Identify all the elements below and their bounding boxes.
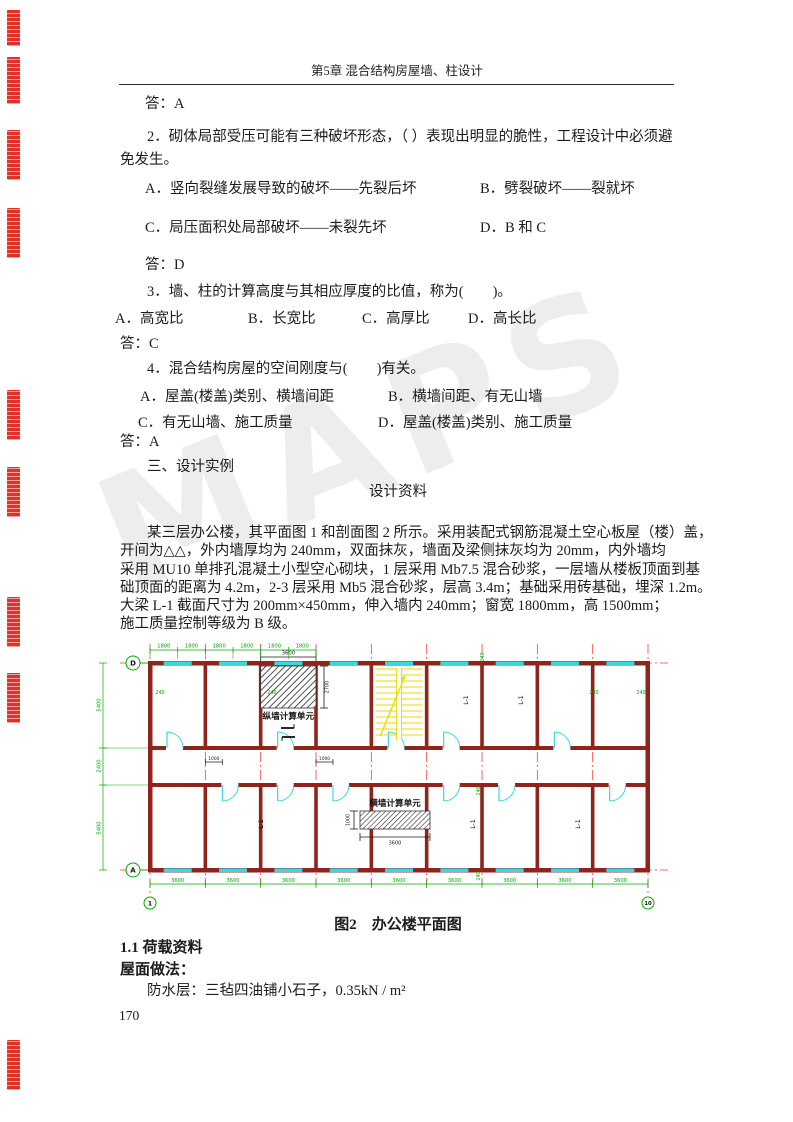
design-paragraph-l1: 某三层办公楼，其平面图 1 和剖面图 2 所示。采用装配式钢筋混凝土空心板屋（楼… [120,524,703,543]
bottom-dim-label: 3600 [503,878,516,884]
top-dim-label: 1800 [240,644,253,650]
longitudinal-unit-hatch [261,666,316,708]
bottom-dim-label: 3600 [226,878,239,884]
beam-label-l1: L-1 [470,819,477,829]
q2-option-b: B．劈裂破坏——裂就坏 [480,180,635,199]
left-dim-label: 5400 [97,821,103,834]
door-opening [498,782,515,787]
unit-height-dim: 2700 [325,681,331,694]
red-stamp [7,467,20,517]
window-bottom [551,868,579,872]
wall-thickness-label: 240 [267,690,276,696]
transverse-unit-hatch [360,811,430,829]
red-stamp [7,1040,20,1090]
beam-label-l1: L-1 [463,695,470,705]
cross-wall-lower [536,787,540,868]
left-dim-label: 5400 [97,698,103,711]
header-rule [119,84,674,85]
window-top [330,661,358,665]
cross-wall-lower [204,787,208,868]
wall-thickness-label: 240 [476,871,482,880]
window-bottom [496,868,524,872]
question-2-line2: 免发生。 [120,151,676,170]
document-page: MAPS 第5章 混合结构房屋墙、柱设计 答：A 2．砌体局部受压可能有三种破坏… [0,0,793,1122]
red-stamp [7,208,20,258]
beam-label-l1: L-1 [575,819,582,829]
chapter-header: 第5章 混合结构房屋墙、柱设计 [120,60,674,79]
q4-option-a: A．屋盖(楼盖)类别、横墙间距 [140,388,334,407]
door-opening [166,745,183,750]
q4-option-d: D．屋盖(楼盖)类别、施工质量 [378,414,572,433]
door-opening [332,782,349,787]
door-opening [277,745,294,750]
design-paragraph-l5: 大梁 L-1 截面尺寸为 200mm×450mm，伸入墙内 240mm；窗宽 1… [120,597,676,616]
q2-option-d: D．B 和 C [480,219,546,238]
question-3: 3．墙、柱的计算高度与其相应厚度的比值，称为( )。 [120,283,703,302]
door-offset-dim-label: 1000 [319,756,330,762]
window-bottom [330,868,358,872]
q4-option-b: B．横墙间距、有无山墙 [388,388,543,407]
q2-option-c: C．局压面积处局部破坏——未裂先坏 [145,219,387,238]
answer-3: 答：C [120,335,676,354]
cross-wall-upper [536,666,540,747]
window-top [496,661,524,665]
window-top [551,661,579,665]
grid-bubble-10-label: 10 [644,901,652,907]
cross-wall-lower [591,787,595,868]
q3-option-b: B．长宽比 [248,310,316,329]
design-paragraph-l6: 施工质量控制等级为 B 级。 [120,615,676,634]
roof-method-heading: 屋面做法： [120,961,676,980]
exterior-wall-right [646,661,651,873]
cross-wall-upper [591,666,595,747]
figure-caption: 图2 办公楼平面图 [120,916,676,935]
cross-wall-upper [480,666,484,747]
page-content: 第5章 混合结构房屋墙、柱设计 答：A 2．砌体局部受压可能有三种破坏形态，（ … [0,0,793,1122]
door-opening [443,782,460,787]
page-number: 170 [119,1008,139,1024]
bottom-dim-label: 3600 [448,878,461,884]
window-top [440,661,468,665]
red-stamp [7,597,20,647]
wall-thickness-label: 240 [155,690,164,696]
top-dim-label: 1800 [157,644,170,650]
wall-thickness-label: 240 [480,652,486,661]
window-bottom [385,868,413,872]
q3-option-a: A．高宽比 [115,310,183,329]
bottom-dim-label: 3600 [171,878,184,884]
cross-wall-upper [370,666,374,747]
transverse-unit-label: 横墙计算单元 [369,797,421,809]
red-stamp [7,130,20,180]
cross-wall-upper [425,666,429,747]
answer-4: 答：A [120,433,676,452]
transverse-unit-width-dim: 3600 [389,841,402,847]
top-dim-label: 1800 [185,644,198,650]
bottom-dim-label: 3600 [282,878,295,884]
design-paragraph-l4: 础顶面的距离为 4.2m，2-3 层采用 Mb5 混合砂浆，层高 3.4m；基础… [120,579,676,598]
design-paragraph-l3: 采用 MU10 单排孔混凝土小型空心砌块，1 层采用 Mb7.5 混合砂浆，一层… [120,561,676,580]
waterproof-layer-line: 防水层：三毡四油铺小石子，0.35kN / m² [120,982,703,1001]
window-bottom [274,868,302,872]
red-stamp [7,390,20,440]
question-2-line1: 2．砌体局部受压可能有三种破坏形态，（ ）表现出明显的脆性，工程设计中必须避 [120,128,703,147]
window-top [385,661,413,665]
red-stamp [7,57,20,104]
section-3-heading: 三、设计实例 [120,458,703,477]
beam-label-l1: L-1 [258,819,265,829]
window-top [606,661,634,665]
top-dim-label: 1800 [213,644,226,650]
window-bottom [219,868,247,872]
top-dim-label: 1800 [268,644,281,650]
red-stamp [7,673,20,723]
window-top [219,661,247,665]
q2-option-a: A．竖向裂缝发展导致的破坏——先裂后坏 [145,180,416,199]
wall-thickness-label: 240 [636,690,645,696]
door-offset-dim-label: 1000 [208,756,219,762]
cross-wall-upper [204,666,208,747]
stair-well [396,668,401,740]
window-bottom [440,868,468,872]
cross-wall-lower [480,787,484,868]
bottom-dim-label: 3600 [558,878,571,884]
bottom-dim-label: 3600 [392,878,405,884]
grid-bubble-a-label: A [130,867,136,875]
door-opening [443,745,460,750]
grid-bubble-1-label: 1 [148,899,152,907]
question-4: 4．混合结构房屋的空间刚度与( )有关。 [120,360,703,379]
top-dim-label: 1800 [296,644,309,650]
floor-plan-figure: 36002700纵墙计算单元横墙计算单元10003600180018001800… [90,638,686,914]
section-1-1-heading: 1.1 荷载资料 [120,939,676,958]
left-dim-label: 2400 [97,759,103,772]
longitudinal-unit-label: 纵墙计算单元 [263,710,315,722]
window-top [164,661,192,665]
q4-option-c: C．有无山墙、施工质量 [138,414,293,433]
red-stamp [7,10,20,46]
q3-option-d: D．高长比 [468,310,536,329]
bottom-dim-label: 3600 [337,878,350,884]
door-opening [553,745,570,750]
wall-thickness-label: 240 [476,786,482,795]
window-top [274,661,302,665]
answer-2: 答：D [120,256,701,275]
transverse-unit-height-dim: 1000 [346,814,352,826]
window-bottom [606,868,634,872]
exterior-wall-left [148,661,153,873]
beam-label-l1: L-1 [518,695,525,705]
window-bottom [164,868,192,872]
door-opening [277,782,294,787]
q3-option-c: C．高厚比 [362,310,430,329]
cross-wall-lower [314,787,318,868]
wall-thickness-label: 240 [589,690,598,696]
door-opening [221,782,238,787]
door-opening [609,782,626,787]
design-data-heading: 设计资料 [120,483,676,502]
design-paragraph-l2: 开间为△△，外内墙厚均为 240mm，双面抹灰，墙面及梁侧抹灰均为 20mm，内… [120,542,676,561]
answer-1: 答：A [120,95,701,114]
door-opening [387,745,404,750]
bottom-dim-label: 3600 [614,878,627,884]
grid-bubble-d-label: D [130,660,136,668]
